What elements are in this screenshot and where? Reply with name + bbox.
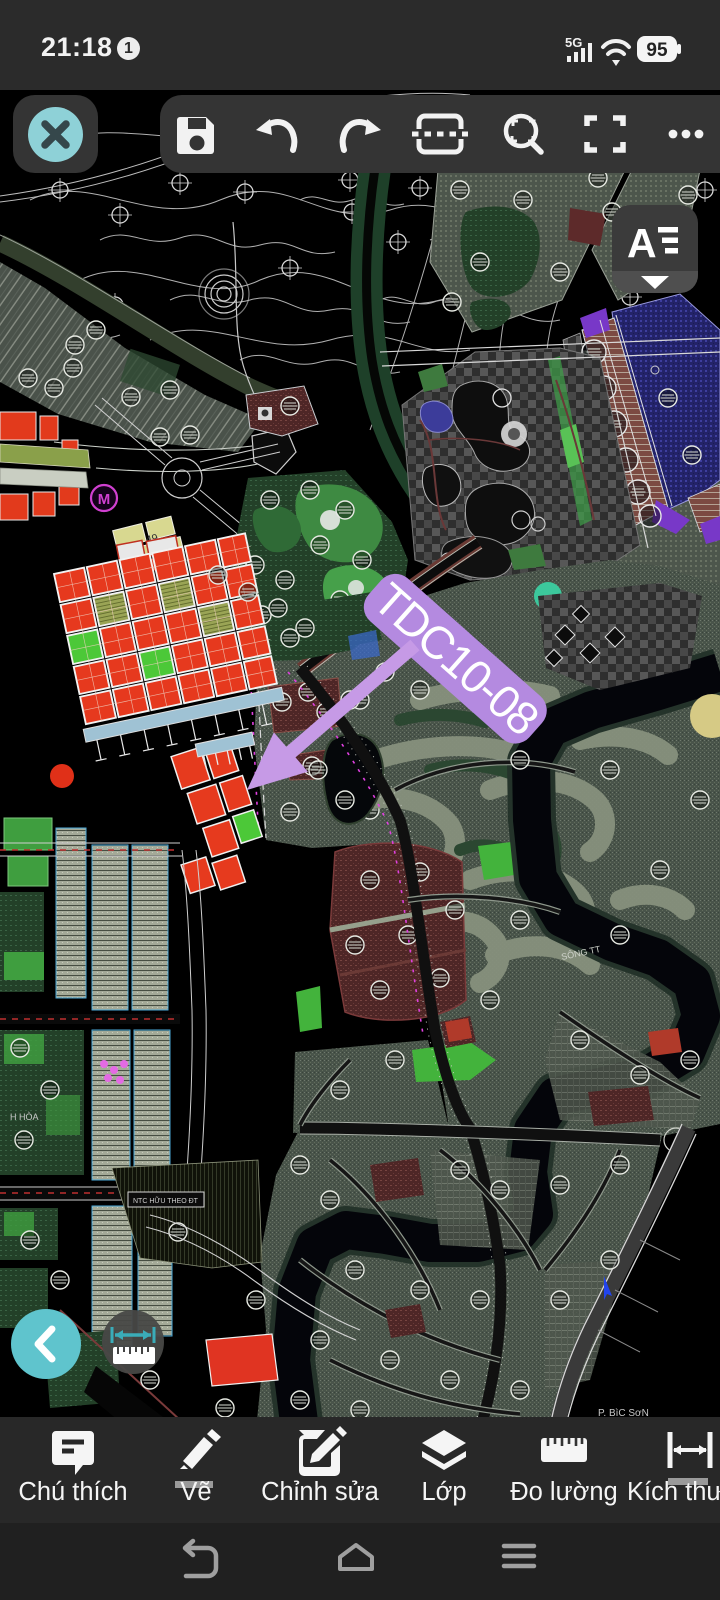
svg-text:Lớp: Lớp [421, 1478, 466, 1506]
svg-text:5G: 5G [565, 35, 582, 50]
svg-text:Chú thích: Chú thích [18, 1478, 127, 1506]
svg-text:H HÒA: H HÒA [10, 1112, 39, 1122]
svg-text:A: A [627, 220, 657, 266]
svg-text:Chỉnh sửa: Chỉnh sửa [261, 1478, 380, 1506]
svg-text:NTC HỮU THEO ĐT: NTC HỮU THEO ĐT [133, 1196, 199, 1205]
svg-text:95: 95 [646, 40, 668, 61]
svg-text:M: M [98, 491, 111, 508]
svg-text:Vẽ: Vẽ [180, 1478, 211, 1506]
svg-text:Đo lường: Đo lường [510, 1478, 618, 1506]
svg-text:Kích thước: Kích thước [627, 1478, 720, 1506]
